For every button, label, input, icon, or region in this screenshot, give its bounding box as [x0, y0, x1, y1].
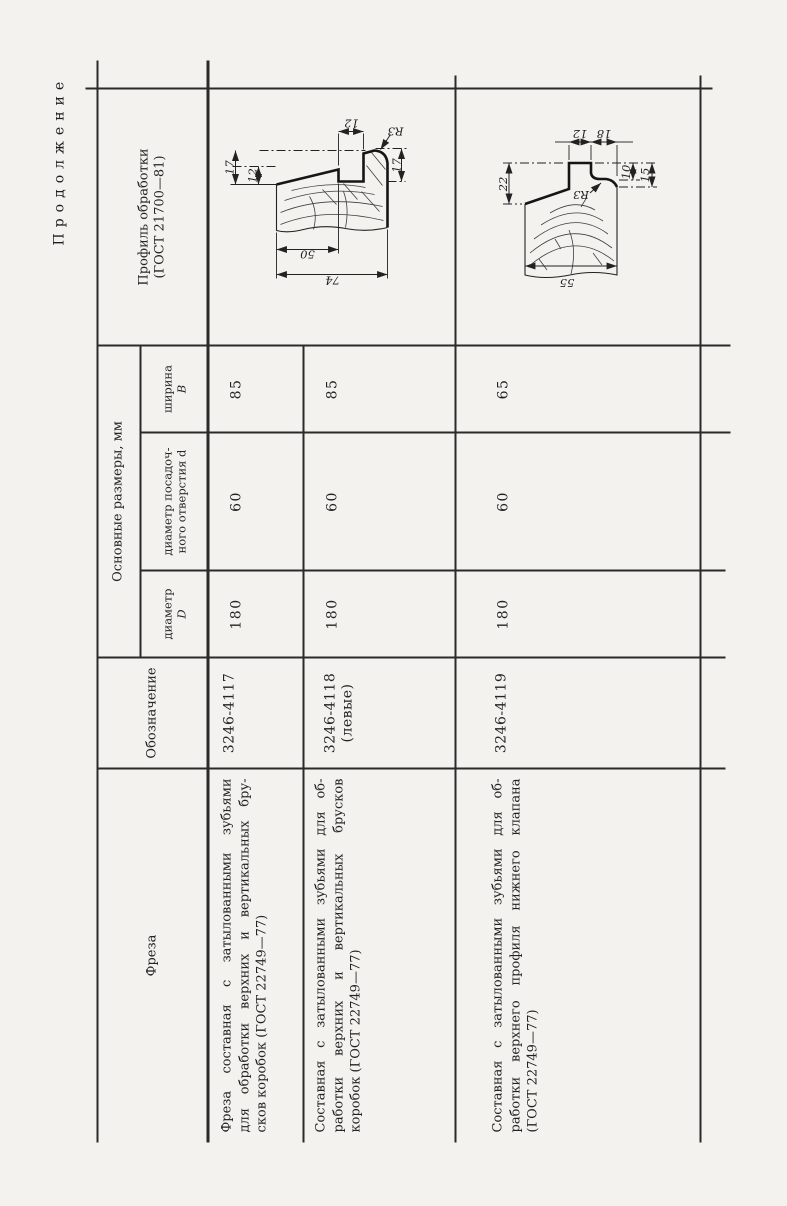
row3-name-line3: (ГОСТ 22749—77) — [525, 779, 543, 1133]
scanned-document-page: Продолжение Фреза Обозначение Основные р… — [0, 0, 787, 1206]
row3-width-B: 65 — [456, 346, 701, 433]
row2-diameter-D: 180 — [304, 571, 456, 658]
header-width-B: ширина В — [142, 346, 208, 433]
dim-radius: R3 — [573, 188, 590, 202]
dim-right: 17 — [390, 158, 404, 173]
header-dimensions-group-label: Основные размеры, мм — [111, 421, 127, 582]
dim-left-outer: 17 — [226, 160, 237, 175]
row2-designation: 3246-4118 (левые) — [304, 658, 456, 769]
wood-grain-lines — [281, 153, 386, 230]
header-width-label: ширина — [161, 365, 175, 413]
dim-radius: R3 — [388, 125, 405, 139]
dim-right-outer: 15 — [638, 168, 652, 183]
row3-designation: 3246-4119 — [456, 658, 701, 769]
row1-name-line3: сков коробок (ГОСТ 22749—77) — [254, 779, 272, 1133]
dim-top-right: 18 — [597, 127, 612, 141]
row3-name-line1: Составная с затылованными зубьями для об… — [490, 779, 508, 1133]
row3-bore-d: 60 — [456, 433, 701, 571]
rotated-table-canvas: Продолжение Фреза Обозначение Основные р… — [98, 89, 701, 1143]
row1-bore-d: 60 — [209, 433, 304, 571]
dim-left-inner: 12 — [246, 168, 260, 183]
row1-name-line2: для обработки верхних и вертикальных бру… — [236, 779, 254, 1133]
header-bore-line2: ного отверстия d — [175, 450, 189, 554]
row3-designation-value: 3246-4119 — [494, 658, 511, 769]
row3-name-line2: работки верхнего профиля нижнего клапана — [507, 779, 525, 1133]
header-profile-line2: (ГОСТ 21700—81) — [153, 155, 169, 278]
header-tool-label: Фреза — [145, 935, 161, 977]
row2-designation-note: (левые) — [340, 658, 357, 769]
header-dimensions-group: Основные размеры, мм — [98, 346, 140, 658]
row2-tool-name: Составная с затылованными зубьями для об… — [304, 769, 456, 1143]
header-tool: Фреза — [98, 769, 208, 1143]
header-designation-label: Обозначение — [145, 667, 161, 758]
row2-designation-value: 3246-4118 — [323, 658, 340, 769]
row1-designation-value: 3246-4117 — [222, 658, 239, 769]
row1-designation: 3246-4117 — [209, 658, 304, 769]
header-bore-diameter: диаметр посадоч- ного отверстия d — [142, 433, 208, 571]
dim-right-inner: 10 — [619, 165, 633, 180]
profile-drawing-1-svg: 17 12 12 R3 17 50 74 — [226, 104, 409, 299]
header-profile-line1: Профиль обработки — [137, 148, 153, 285]
continuation-label: Продолжение — [52, 56, 76, 246]
header-profile: Профиль обработки (ГОСТ 21700—81) — [98, 89, 208, 346]
row3-tool-name: Составная с затылованными зубьями для об… — [456, 769, 701, 1143]
profile-drawing-2: 22 12 18 10 15 R3 55 — [495, 109, 660, 301]
dim-top-left: 12 — [573, 127, 588, 141]
header-bore-line1: диаметр посадоч- — [161, 447, 175, 555]
header-diameter-D: диаметр D — [142, 571, 208, 658]
header-diameter-symbol: D — [175, 609, 189, 618]
dimension-lines — [509, 142, 652, 266]
row2-name-line3: коробок (ГОСТ 22749—77) — [348, 779, 366, 1133]
row2-bore-d: 60 — [304, 433, 456, 571]
row2-width-B: 85 — [304, 346, 456, 433]
row1-diameter-D: 180 — [209, 571, 304, 658]
wood-grain-lines — [528, 197, 614, 274]
dim-bottom-inner: 50 — [300, 248, 315, 262]
wood-profile-cut-outline — [525, 163, 617, 204]
profile-drawing-1: 17 12 12 R3 17 50 74 — [226, 104, 409, 299]
header-width-symbol: В — [175, 385, 189, 393]
row2-name-line1: Составная с затылованными зубьями для об… — [313, 779, 331, 1133]
row3-diameter-D: 180 — [456, 571, 701, 658]
wood-profile-cut-outline — [277, 151, 388, 228]
dim-bottom: 55 — [560, 276, 575, 290]
row2-name-line2: работки верхних и вертикальных брусков — [330, 779, 348, 1133]
row1-width-B: 85 — [209, 346, 304, 433]
profile-drawing-2-svg: 22 12 18 10 15 R3 55 — [495, 109, 660, 301]
header-designation: Обозначение — [98, 658, 208, 769]
dim-top: 12 — [344, 117, 359, 131]
dim-bottom-outer: 74 — [325, 274, 340, 288]
row1-name-line1: Фреза составная с затылованными зубьями — [219, 779, 237, 1133]
dim-left: 22 — [496, 177, 510, 193]
header-diameter-label: диаметр — [161, 588, 175, 639]
row1-tool-name: Фреза составная с затылованными зубьями … — [209, 769, 304, 1143]
